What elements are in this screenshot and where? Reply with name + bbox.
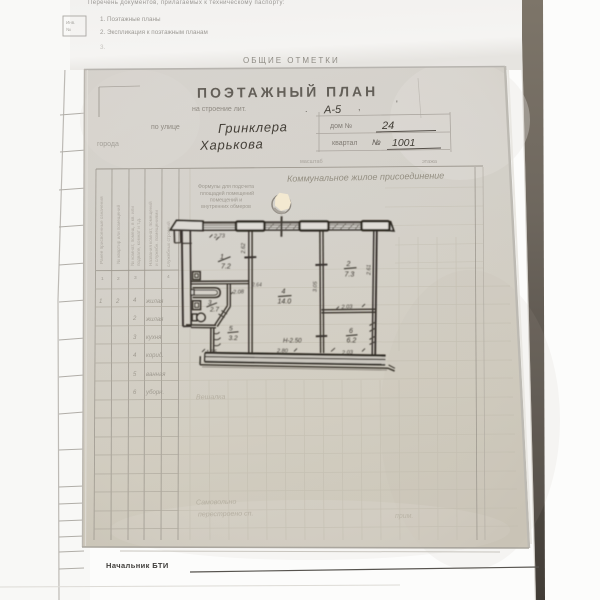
svg-text:дом №: дом № (330, 123, 352, 130)
svg-text:жилая: жилая (145, 317, 164, 323)
svg-text:3.05: 3.05 (313, 280, 319, 292)
svg-text:жилая: жилая (145, 299, 164, 305)
svg-text:на строение лит.: на строение лит. (192, 106, 246, 113)
svg-text:Перечень документов, прилагаем: Перечень документов, прилагаемых к техни… (88, 0, 285, 6)
svg-text:2: 2 (346, 261, 351, 268)
svg-text:помещений и: помещений и (210, 197, 242, 204)
svg-text:2. Экспликация к поэтажным пла: 2. Экспликация к поэтажным планам (100, 29, 208, 36)
svg-text:Формулы для подсчета: Формулы для подсчета (198, 184, 254, 190)
svg-text:кухня: кухня (146, 335, 162, 341)
svg-text:прим.: прим. (395, 513, 413, 520)
svg-text:3: 3 (134, 275, 137, 281)
svg-text:2: 2 (117, 276, 120, 282)
svg-text:2.61: 2.61 (367, 265, 373, 277)
svg-text:площадей помещений: площадей помещений (200, 190, 254, 197)
svg-text:7.3: 7.3 (345, 272, 355, 279)
svg-text:Инв.: Инв. (66, 20, 75, 25)
svg-text:6: 6 (349, 328, 353, 335)
svg-text:№ комнат, помещ. в кв. или: № комнат, помещ. в кв. или (130, 206, 135, 266)
svg-text:внутренних обмеров: внутренних обмеров (201, 204, 251, 210)
svg-text:1001: 1001 (392, 137, 415, 149)
svg-text:2.08: 2.08 (232, 289, 245, 296)
svg-text:2.03: 2.03 (340, 304, 353, 311)
svg-text:по улице: по улице (151, 124, 180, 131)
svg-text:6.2: 6.2 (347, 338, 357, 345)
svg-text:ванная: ванная (146, 372, 166, 378)
svg-text:2.80: 2.80 (276, 349, 289, 355)
svg-text:Н-2.50: Н-2.50 (283, 338, 302, 345)
svg-text:3.: 3. (100, 44, 106, 51)
svg-text:подвале, комнат и т.д.: подвале, комнат и т.д. (136, 218, 141, 266)
svg-text:Начальник БТИ: Начальник БТИ (106, 561, 169, 570)
svg-text:Ранее присвоенные означения: Ранее присвоенные означения (99, 196, 104, 264)
svg-text:и служебн. помещениями: и служебн. помещениями (154, 210, 159, 266)
svg-text:Названия комнат, помещений: Названия комнат, помещений (147, 201, 153, 266)
svg-text:корид.: корид. (146, 353, 164, 359)
svg-text:этажа: этажа (422, 159, 438, 165)
svg-text:7.2: 7.2 (221, 264, 231, 271)
svg-text:2.62: 2.62 (241, 243, 247, 255)
svg-text:Самовольно: Самовольно (196, 499, 237, 507)
svg-text:2.64: 2.64 (251, 283, 262, 289)
svg-text:масштаб: масштаб (300, 159, 323, 165)
svg-text:.: . (305, 104, 308, 114)
svg-text:5: 5 (229, 326, 233, 333)
svg-text:1. Поэтажные планы: 1. Поэтажные планы (100, 16, 161, 23)
svg-text:4: 4 (282, 289, 286, 296)
svg-text:2.03: 2.03 (341, 350, 354, 357)
svg-text:24: 24 (381, 120, 394, 132)
svg-text:А-5: А-5 (323, 104, 342, 117)
svg-text:2: 2 (132, 316, 137, 322)
svg-text:4: 4 (167, 274, 170, 280)
svg-text:1: 1 (99, 299, 102, 305)
svg-text:№: № (66, 27, 71, 32)
svg-text:ОБЩИЕ ОТМЕТКИ: ОБЩИЕ ОТМЕТКИ (243, 56, 340, 65)
svg-text:ʹ: ʹ (396, 99, 398, 109)
svg-text:,: , (358, 102, 361, 112)
svg-text:1: 1 (101, 276, 104, 282)
svg-text:2: 2 (115, 299, 120, 305)
svg-text:перестроено сп.: перестроено сп. (198, 511, 254, 519)
svg-text:квартал: квартал (332, 140, 357, 147)
svg-text:2.73: 2.73 (213, 233, 226, 240)
svg-text:ПОЭТАЖНЫЙ ПЛАН: ПОЭТАЖНЫЙ ПЛАН (197, 82, 378, 101)
svg-text:2.7: 2.7 (209, 307, 219, 314)
svg-text:уборн.: уборн. (145, 390, 164, 396)
svg-text:1.35: 1.35 (206, 349, 218, 356)
svg-text:Вешалка: Вешалка (196, 394, 226, 402)
svg-text:14.0: 14.0 (278, 299, 292, 306)
svg-text:Харькова: Харькова (199, 136, 264, 153)
svg-text:3.2: 3.2 (229, 335, 238, 342)
svg-text:служебных строений: служебных строений (165, 221, 171, 267)
svg-text:Гринклера: Гринклера (218, 119, 288, 136)
svg-text:№: № (372, 138, 381, 147)
svg-text:города: города (97, 141, 119, 148)
svg-text:№ квартир или помещений: № квартир или помещений (115, 205, 121, 264)
